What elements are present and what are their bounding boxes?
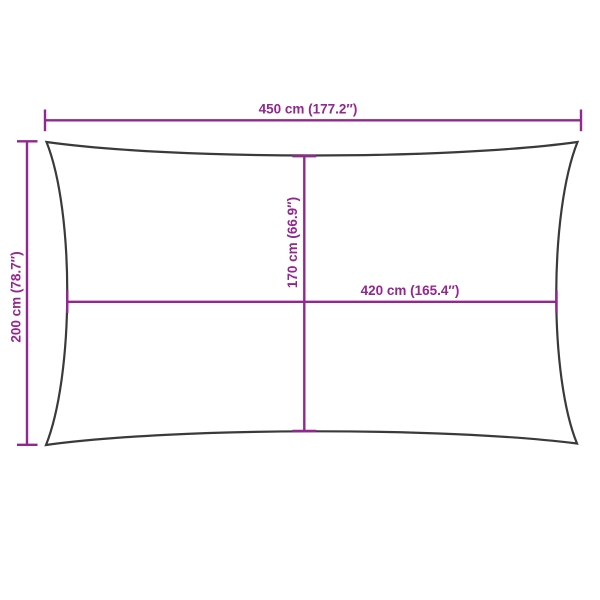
- svg-text:170 cm (66.9″): 170 cm (66.9″): [285, 197, 300, 288]
- svg-text:200 cm (78.7″): 200 cm (78.7″): [9, 251, 24, 342]
- svg-text:420 cm (165.4″): 420 cm (165.4″): [361, 283, 460, 298]
- svg-text:450 cm (177.2″): 450 cm (177.2″): [259, 102, 358, 117]
